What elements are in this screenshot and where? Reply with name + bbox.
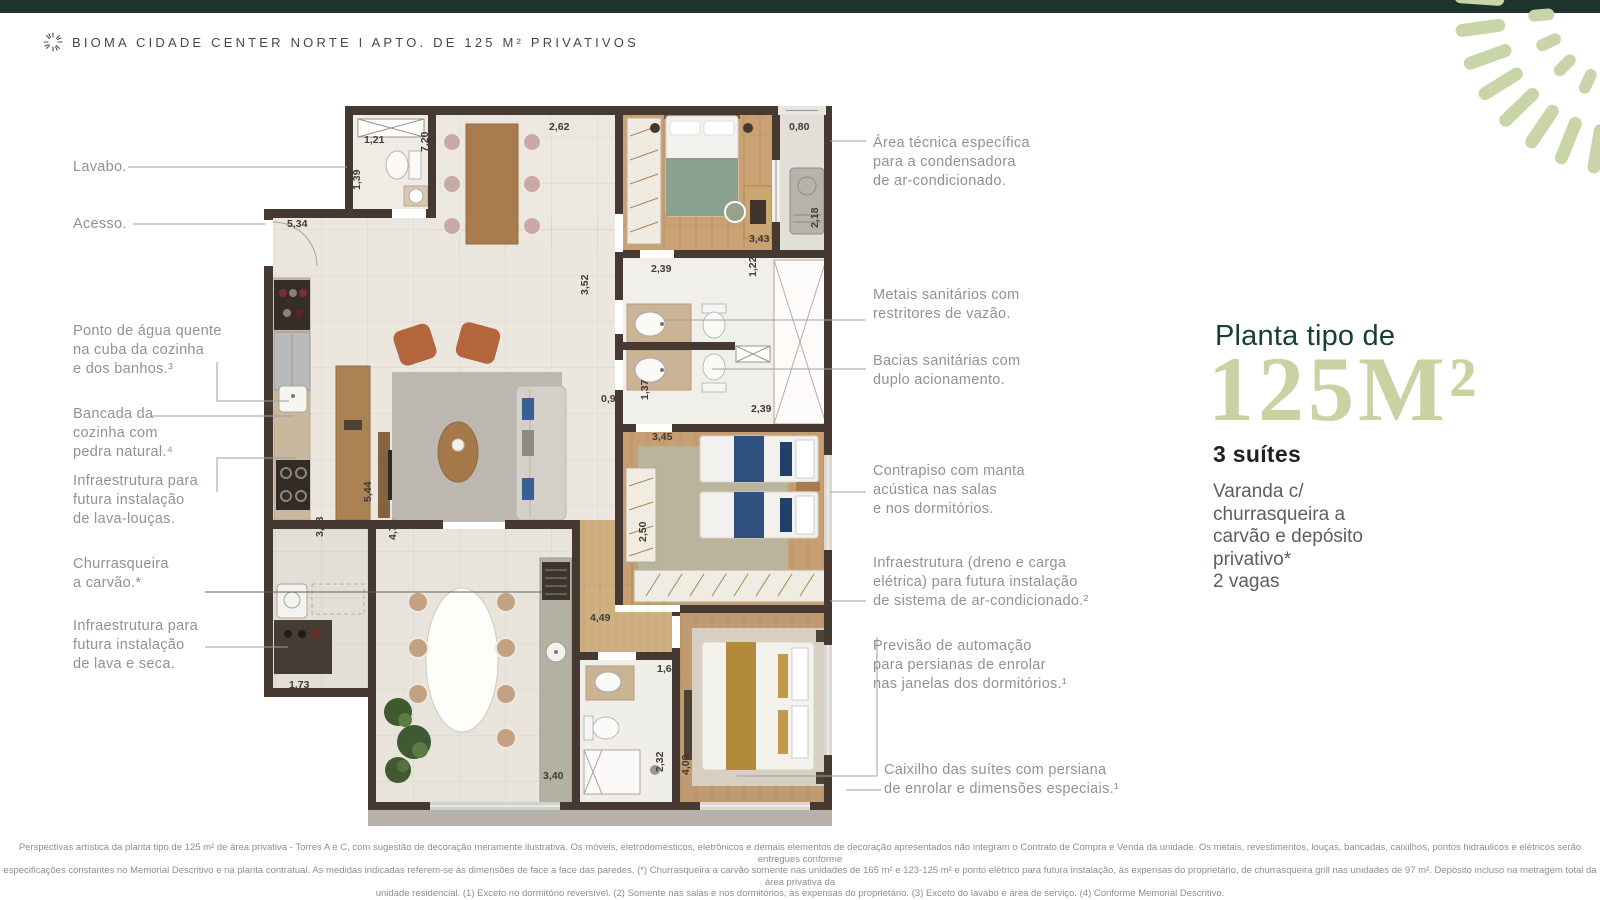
callout-area-tecnica: Área técnica específica para a condensad…: [873, 134, 1030, 191]
churrasqueira-bench: [540, 558, 572, 804]
svg-text:2,32: 2,32: [654, 751, 666, 772]
bedroom2-furniture: [626, 436, 826, 602]
plan-area-value: 125M²: [1208, 341, 1480, 437]
callout-lavabo: Lavabo.: [73, 158, 127, 177]
dining-set: [443, 124, 541, 244]
legal-disclaimer: Perspectivas artística da planta tipo de…: [0, 842, 1600, 900]
callout-ponto-agua: Ponto de água quente na cuba da cozinha …: [73, 322, 222, 379]
svg-text:4,49: 4,49: [590, 612, 611, 624]
svg-text:1,64: 1,64: [657, 663, 678, 675]
callout-acesso: Acesso.: [73, 215, 127, 234]
svg-text:0,80: 0,80: [789, 121, 810, 133]
svg-text:2,18: 2,18: [809, 207, 821, 228]
svg-text:3,40: 3,40: [543, 770, 564, 782]
floor-plan: 1,21 7,20 2,62 0,80 1,39 5,34 3,43 2,18 …: [0, 0, 1600, 900]
svg-text:3,45: 3,45: [652, 431, 673, 443]
callout-bacias: Bacias sanitárias com duplo acionamento.: [873, 352, 1020, 390]
svg-text:5,44: 5,44: [362, 481, 374, 502]
callout-churrasqueira: Churrasqueira a carvão.*: [73, 555, 169, 593]
callout-previsao: Previsão de automação para persianas de …: [873, 637, 1067, 694]
svg-text:2,50: 2,50: [637, 521, 649, 542]
callout-contrapiso: Contrapiso com manta acústica nas salas …: [873, 462, 1025, 519]
svg-text:1,22: 1,22: [747, 256, 759, 277]
svg-text:3,43: 3,43: [749, 233, 770, 245]
svg-text:1,21: 1,21: [364, 134, 385, 146]
svg-text:2,62: 2,62: [549, 121, 570, 133]
callout-caixilho: Caixilho das suítes com persiana de enro…: [884, 761, 1119, 799]
callout-lava-loucas: Infraestrutura para futura instalação de…: [73, 472, 198, 529]
svg-text:4,03: 4,03: [680, 754, 692, 775]
callout-dreno: Infraestrutura (dreno e carga elétrica) …: [873, 554, 1089, 611]
svg-text:0,94: 0,94: [601, 393, 622, 405]
svg-text:2,39: 2,39: [751, 403, 772, 415]
callout-metais: Metais sanitários com restritores de vaz…: [873, 286, 1020, 324]
svg-text:1,73: 1,73: [289, 679, 310, 691]
callout-bancada: Bancada da cozinha com pedra natural.⁴: [73, 405, 173, 462]
suites-count: 3 suítes: [1213, 441, 1301, 468]
master-suite-furniture: [684, 628, 830, 786]
svg-text:3,52: 3,52: [579, 274, 591, 295]
svg-text:7,20: 7,20: [419, 131, 431, 152]
svg-text:3,03: 3,03: [314, 516, 326, 537]
callout-lava-seca: Infraestrutura para futura instalação de…: [73, 617, 198, 674]
plan-features: Varanda c/ churrasqueira a carvão e depó…: [1213, 481, 1363, 594]
svg-text:1,37: 1,37: [639, 379, 651, 400]
svg-text:1,39: 1,39: [351, 169, 363, 190]
svg-text:2,39: 2,39: [651, 263, 672, 275]
svg-text:5,34: 5,34: [287, 218, 308, 230]
svg-text:4,74: 4,74: [387, 519, 399, 540]
page: BIOMA CIDADE CENTER NORTE I APTO. DE 125…: [0, 0, 1600, 900]
